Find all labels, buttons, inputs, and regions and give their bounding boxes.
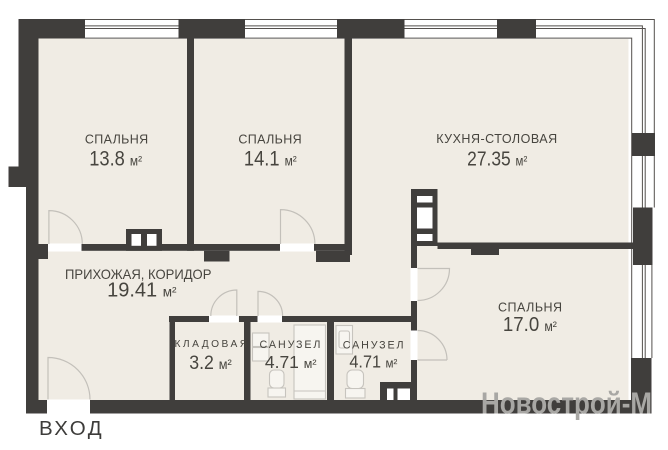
svg-text:СПАЛЬНЯ: СПАЛЬНЯ <box>85 133 149 147</box>
svg-text:КУХНЯ-СТОЛОВАЯ: КУХНЯ-СТОЛОВАЯ <box>436 132 557 146</box>
svg-text:ВХОД: ВХОД <box>39 417 104 440</box>
svg-text:КЛАДОВАЯ: КЛАДОВАЯ <box>174 339 249 350</box>
svg-text:САНУЗЕЛ: САНУЗЕЛ <box>343 340 406 352</box>
svg-text:СПАЛЬНЯ: СПАЛЬНЯ <box>238 133 302 147</box>
svg-text:Новострой-М: Новострой-М <box>481 387 652 421</box>
svg-text:САНУЗЕЛ: САНУЗЕЛ <box>260 339 323 351</box>
